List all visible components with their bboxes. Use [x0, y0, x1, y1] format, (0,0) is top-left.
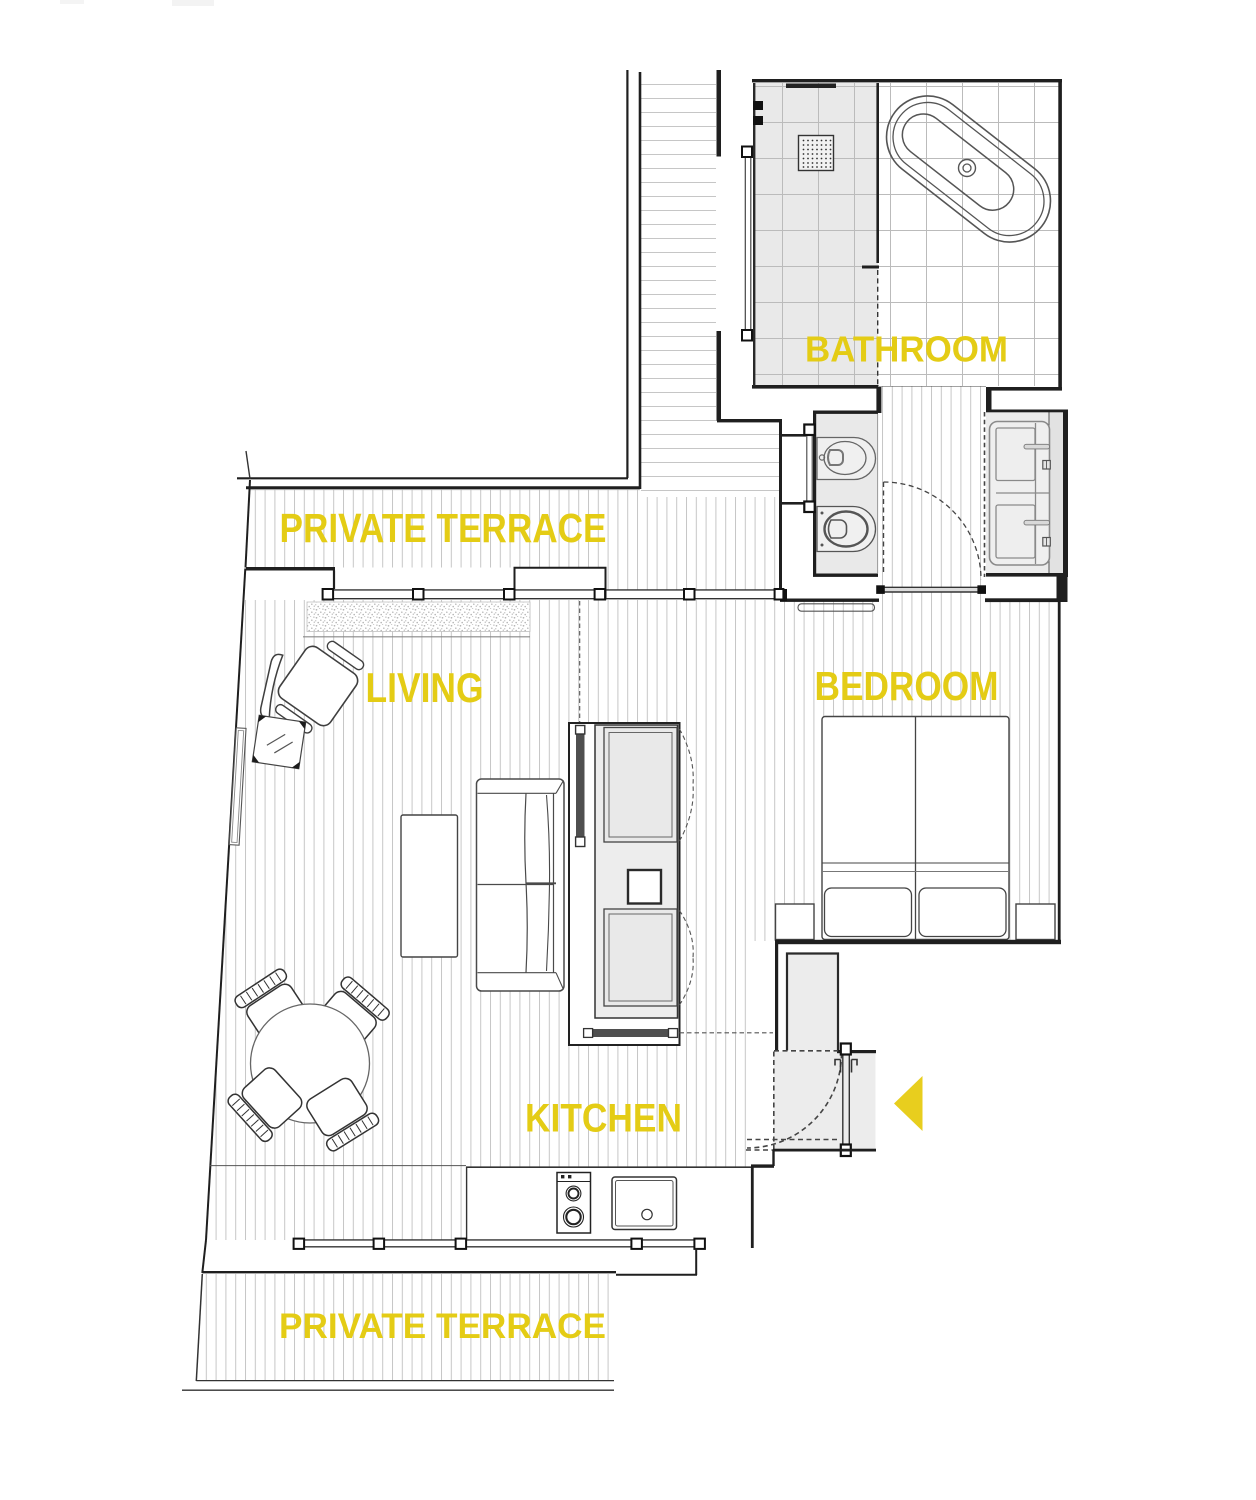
svg-text:BEDROOM: BEDROOM [815, 663, 999, 709]
svg-text:KITCHEN: KITCHEN [525, 1097, 682, 1141]
svg-text:LIVING: LIVING [366, 664, 484, 711]
svg-text:BATHROOM: BATHROOM [805, 329, 1008, 370]
svg-text:PRIVATE TERRACE: PRIVATE TERRACE [280, 505, 607, 551]
svg-text:PRIVATE TERRACE: PRIVATE TERRACE [279, 1306, 606, 1346]
